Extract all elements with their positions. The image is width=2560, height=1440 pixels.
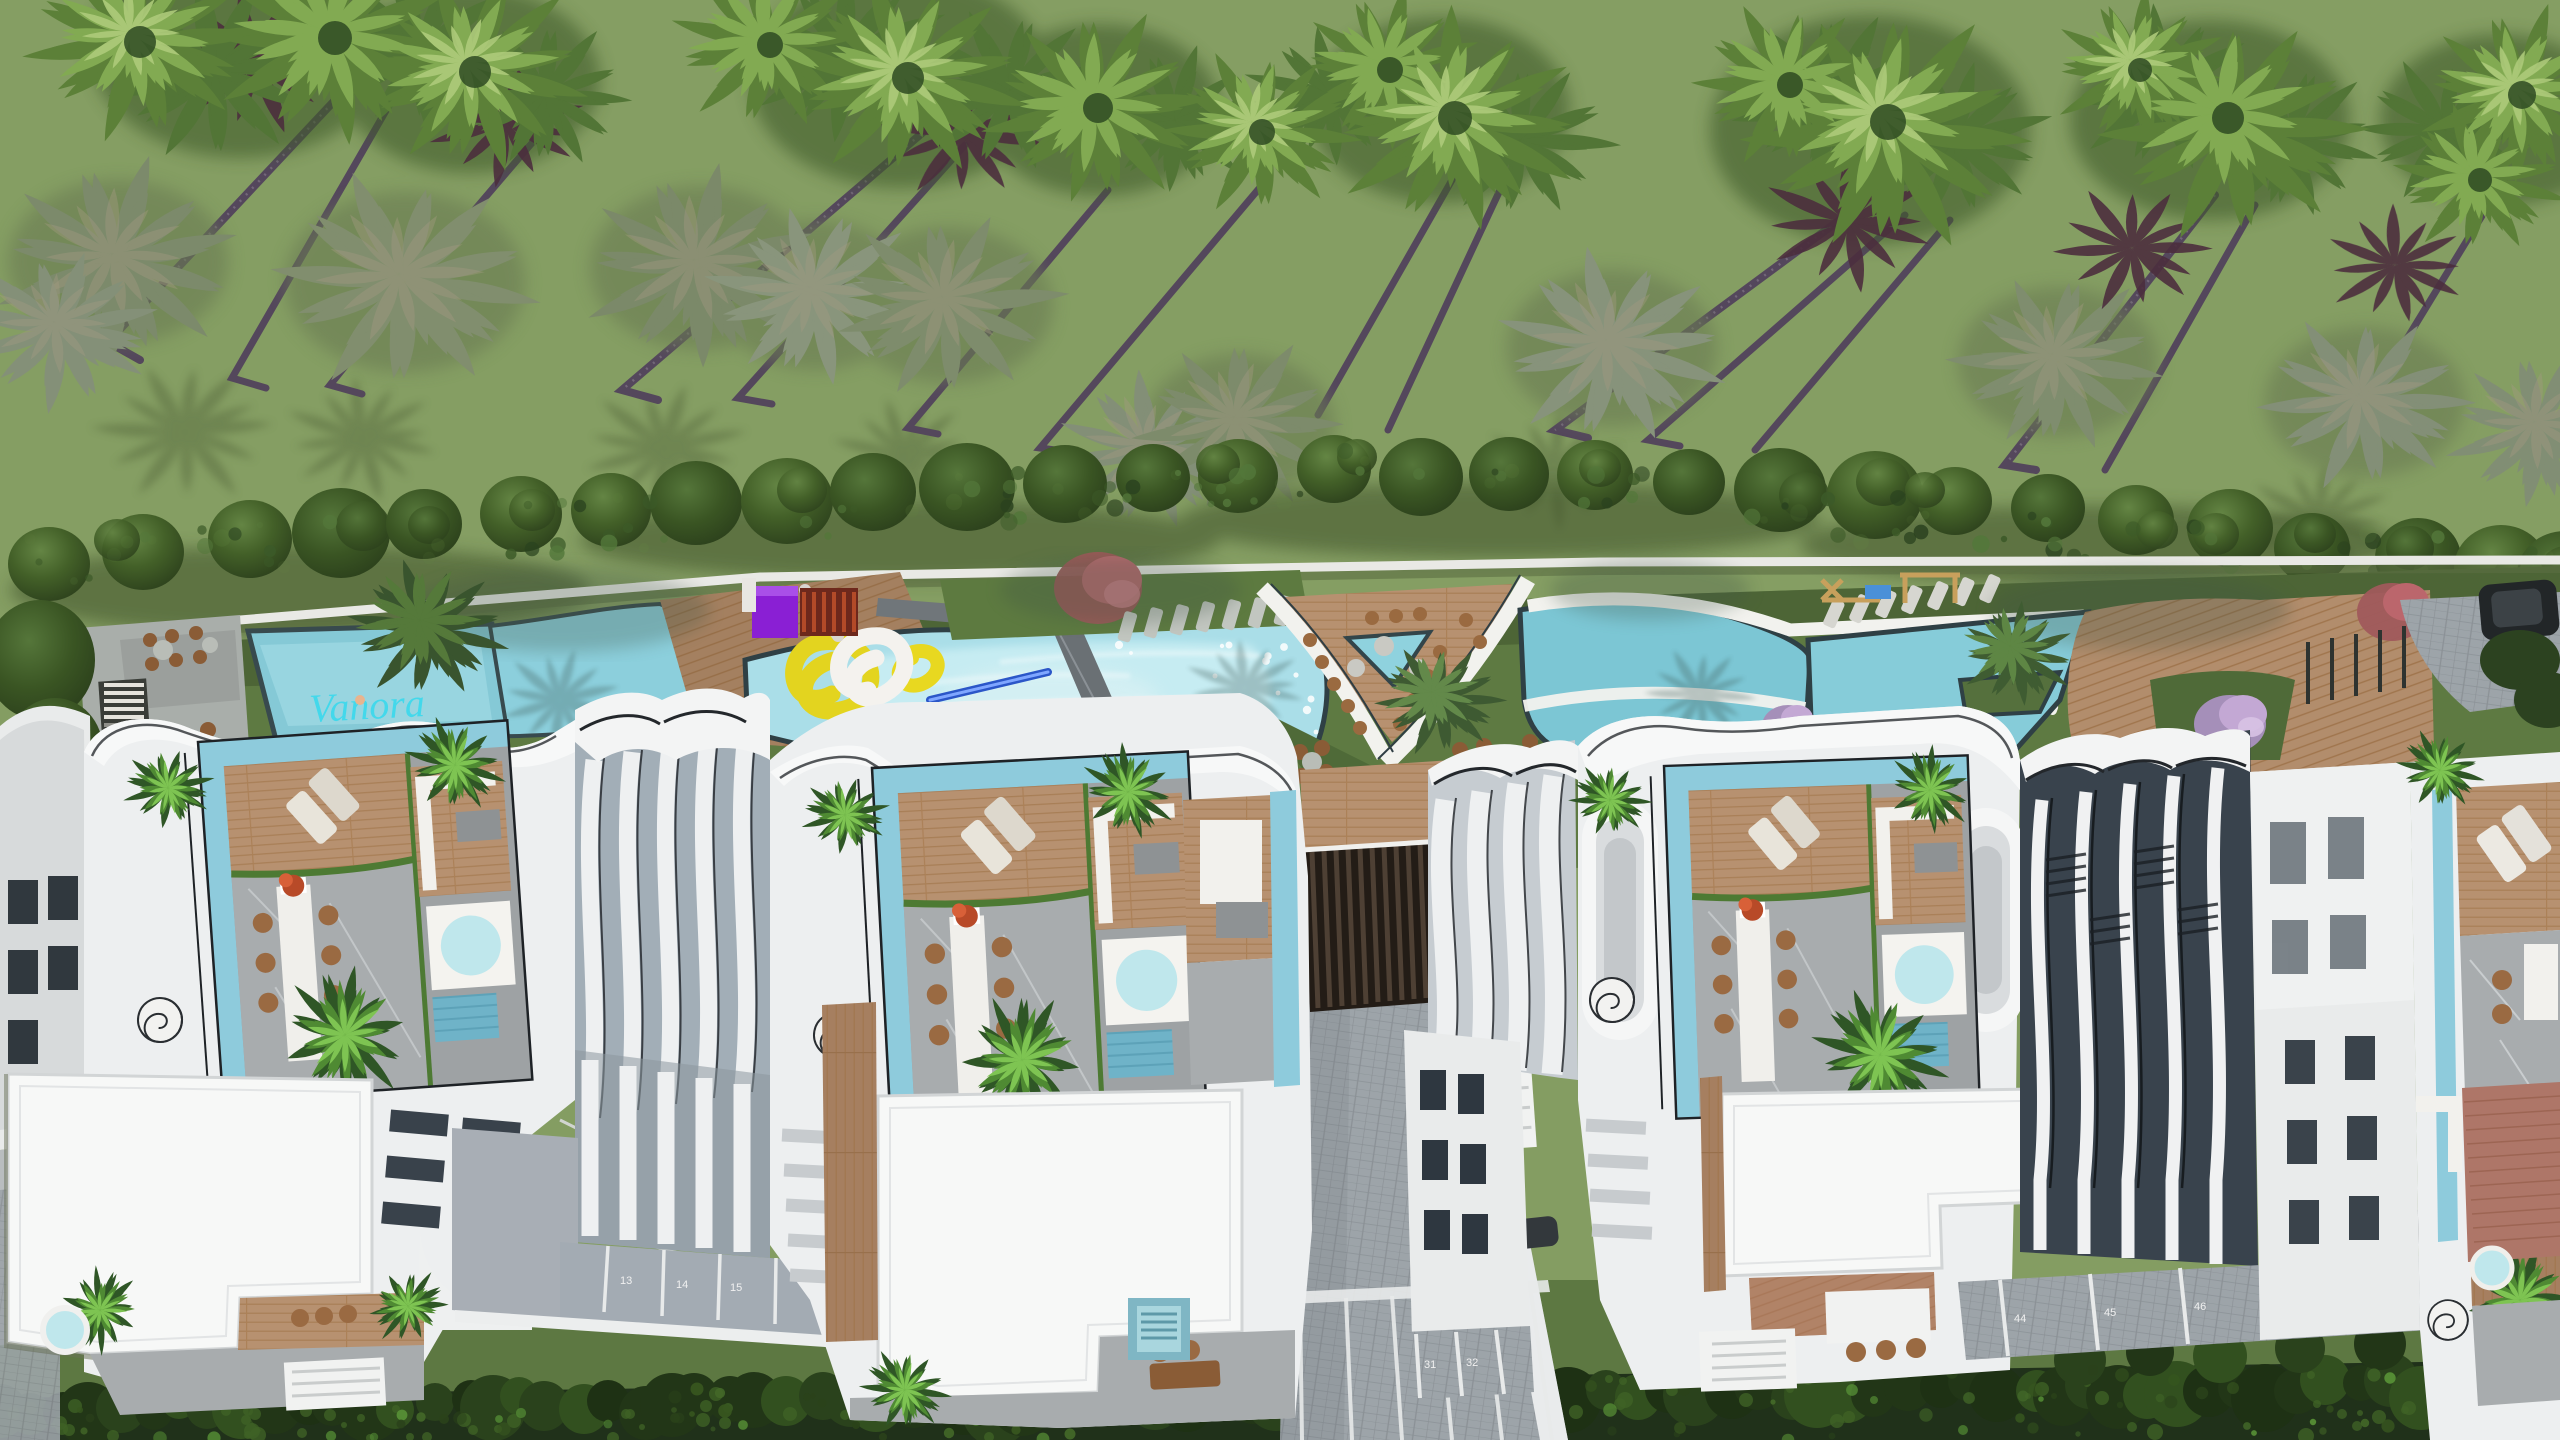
svg-text:45: 45: [2104, 1307, 2116, 1319]
svg-text:44: 44: [2014, 1313, 2026, 1325]
svg-text:31: 31: [1424, 1359, 1436, 1371]
svg-text:14: 14: [676, 1279, 688, 1291]
svg-text:32: 32: [1466, 1357, 1478, 1369]
svg-text:13: 13: [620, 1275, 632, 1287]
svg-text:15: 15: [730, 1282, 742, 1294]
svg-text:46: 46: [2194, 1301, 2206, 1313]
